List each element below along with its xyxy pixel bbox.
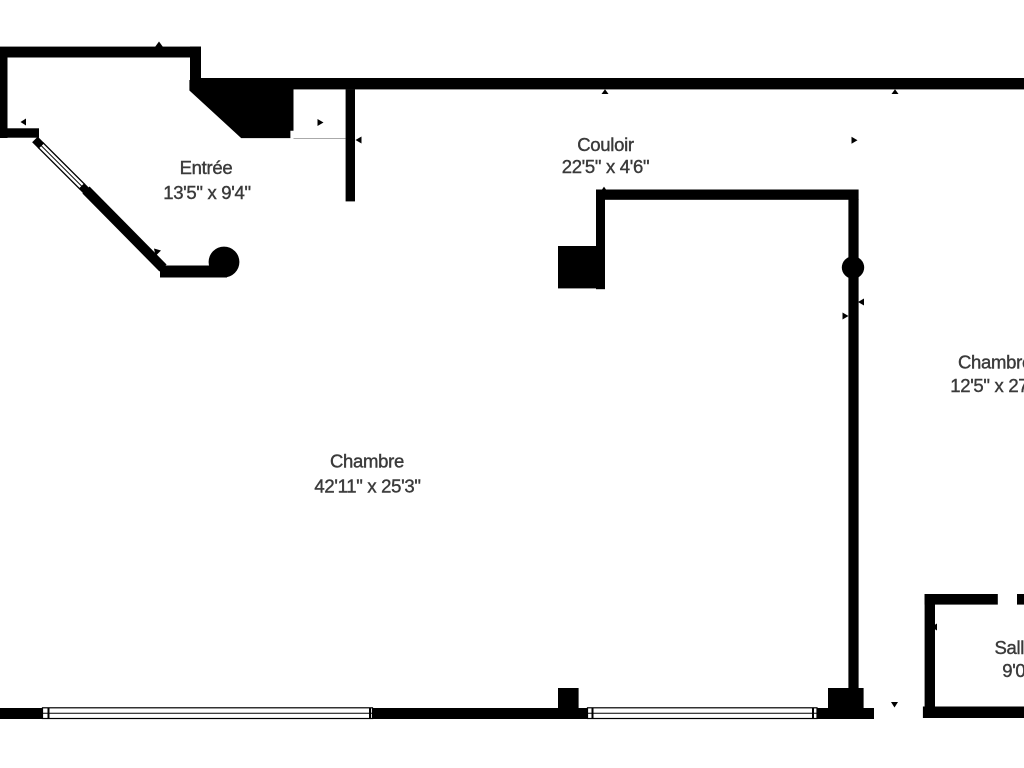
- svg-text:42'11" x 25'3": 42'11" x 25'3": [314, 475, 420, 496]
- svg-text:9'0" x 8'6": 9'0" x 8'6": [1002, 660, 1024, 681]
- svg-text:12'5" x 27'3": 12'5" x 27'3": [950, 375, 1024, 396]
- svg-text:Chambre: Chambre: [958, 351, 1024, 372]
- svg-text:13'5" x 9'4": 13'5" x 9'4": [163, 182, 251, 203]
- svg-text:Salle de bain: Salle de bain: [994, 637, 1024, 658]
- svg-text:Entrée: Entrée: [180, 157, 233, 178]
- svg-text:Chambre: Chambre: [330, 451, 404, 472]
- svg-text:22'5" x 4'6": 22'5" x 4'6": [562, 156, 650, 177]
- svg-text:Couloir: Couloir: [577, 134, 634, 155]
